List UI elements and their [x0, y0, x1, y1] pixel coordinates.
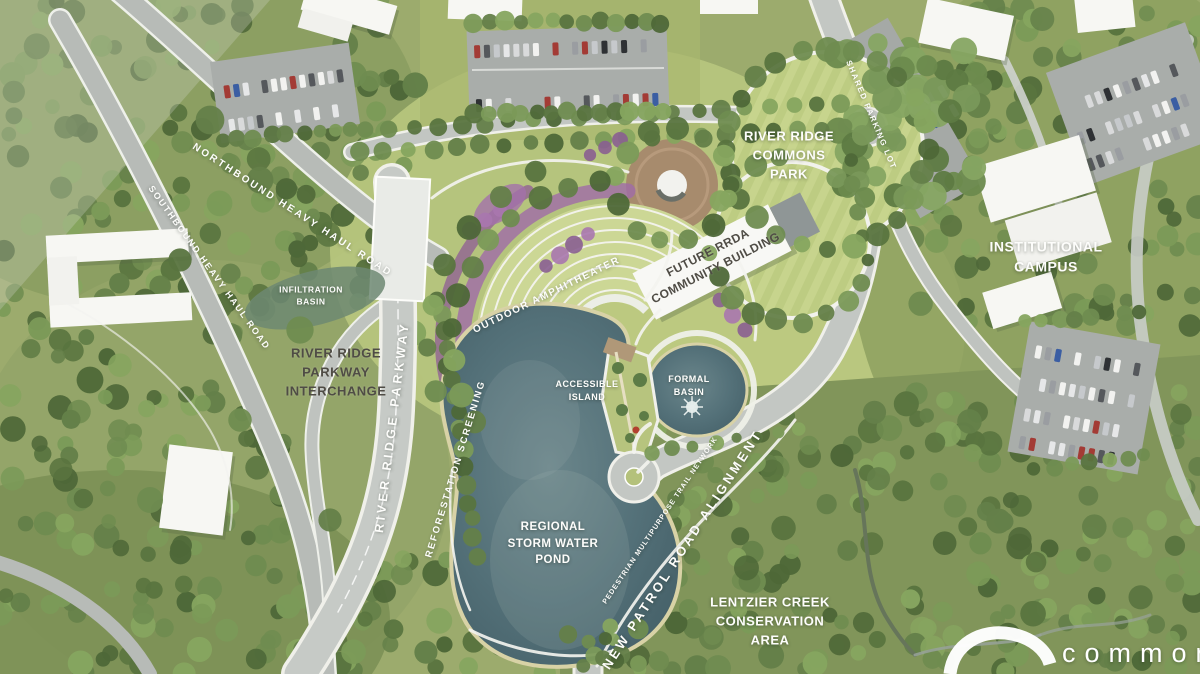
site-plan: NORTHBOUND HEAVY HAUL ROAD SOUTHBOUND HE… — [0, 0, 1200, 674]
site-plan-rendering — [0, 0, 1200, 674]
common-logo-wordmark: common — [1062, 638, 1200, 669]
